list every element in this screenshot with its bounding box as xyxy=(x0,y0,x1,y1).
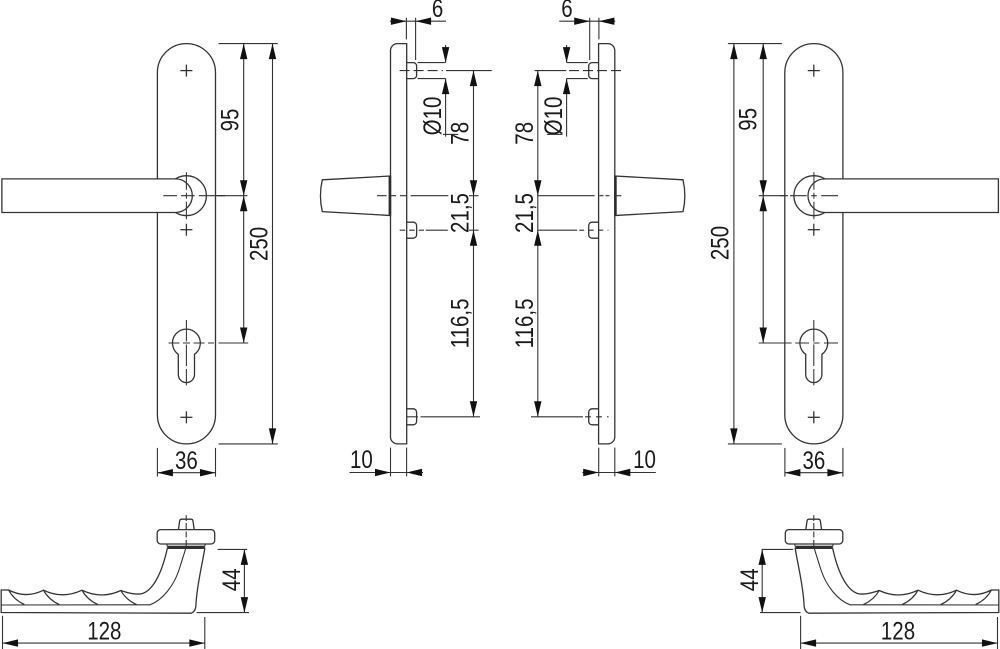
svg-text:116,5: 116,5 xyxy=(446,299,474,349)
svg-text:128: 128 xyxy=(87,616,121,644)
svg-text:36: 36 xyxy=(175,446,198,474)
svg-text:Ø10: Ø10 xyxy=(539,97,567,136)
svg-text:21,5: 21,5 xyxy=(510,193,538,233)
svg-text:10: 10 xyxy=(633,445,656,473)
svg-text:95: 95 xyxy=(733,108,761,131)
svg-text:21,5: 21,5 xyxy=(446,193,474,233)
svg-text:6: 6 xyxy=(432,0,443,23)
svg-text:36: 36 xyxy=(802,446,825,474)
svg-text:6: 6 xyxy=(561,0,572,23)
svg-text:95: 95 xyxy=(216,109,244,132)
svg-text:78: 78 xyxy=(510,122,538,145)
svg-text:250: 250 xyxy=(705,226,733,260)
svg-text:44: 44 xyxy=(217,568,245,591)
svg-text:44: 44 xyxy=(735,568,763,591)
svg-text:250: 250 xyxy=(244,227,272,261)
svg-text:116,5: 116,5 xyxy=(510,299,538,349)
svg-text:Ø10: Ø10 xyxy=(418,97,446,136)
svg-text:10: 10 xyxy=(350,445,373,473)
svg-text:78: 78 xyxy=(446,122,474,145)
svg-text:128: 128 xyxy=(881,616,915,644)
